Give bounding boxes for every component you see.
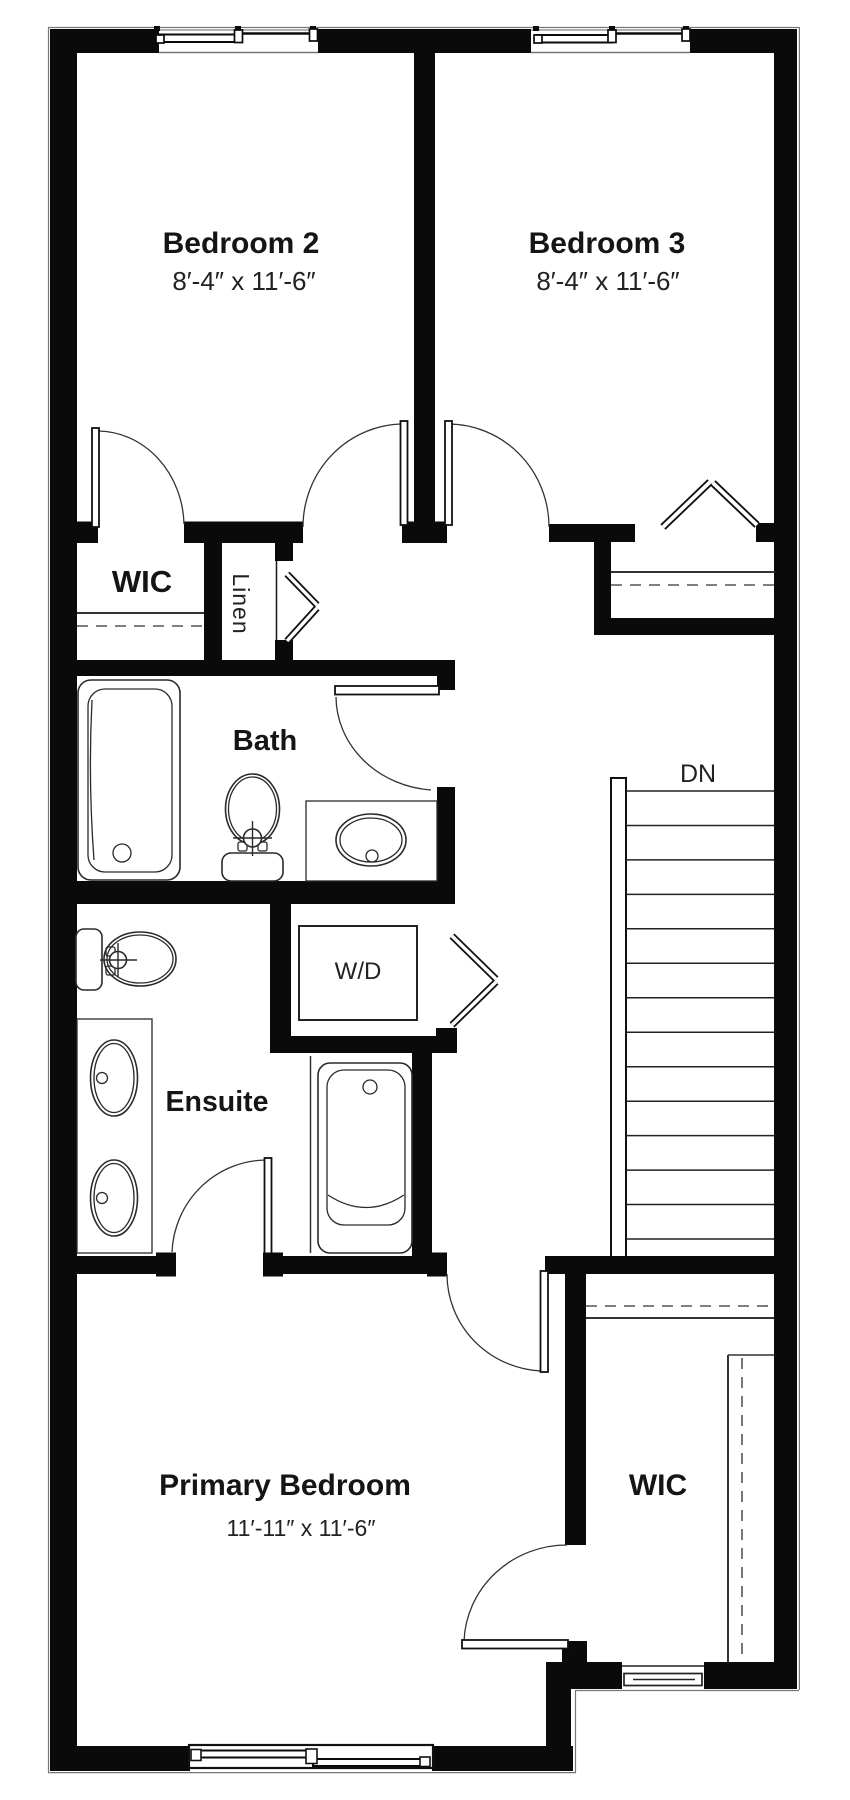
svg-text:Linen: Linen (228, 573, 254, 634)
svg-text:8′-4″ x 11′-6″: 8′-4″ x 11′-6″ (172, 266, 315, 296)
svg-text:Bath: Bath (233, 725, 297, 757)
svg-text:Primary Bedroom: Primary Bedroom (159, 1469, 411, 1502)
svg-text:Bedroom 3: Bedroom 3 (529, 227, 686, 260)
svg-text:Bedroom 2: Bedroom 2 (163, 227, 320, 260)
svg-text:DN: DN (680, 760, 716, 788)
svg-text:11′-11″ x 11′-6″: 11′-11″ x 11′-6″ (227, 1515, 376, 1541)
svg-text:Ensuite: Ensuite (166, 1086, 269, 1118)
svg-text:W/D: W/D (335, 958, 382, 985)
svg-text:WIC: WIC (112, 564, 172, 599)
svg-text:8′-4″ x 11′-6″: 8′-4″ x 11′-6″ (536, 266, 679, 296)
svg-text:WIC: WIC (629, 1469, 687, 1502)
